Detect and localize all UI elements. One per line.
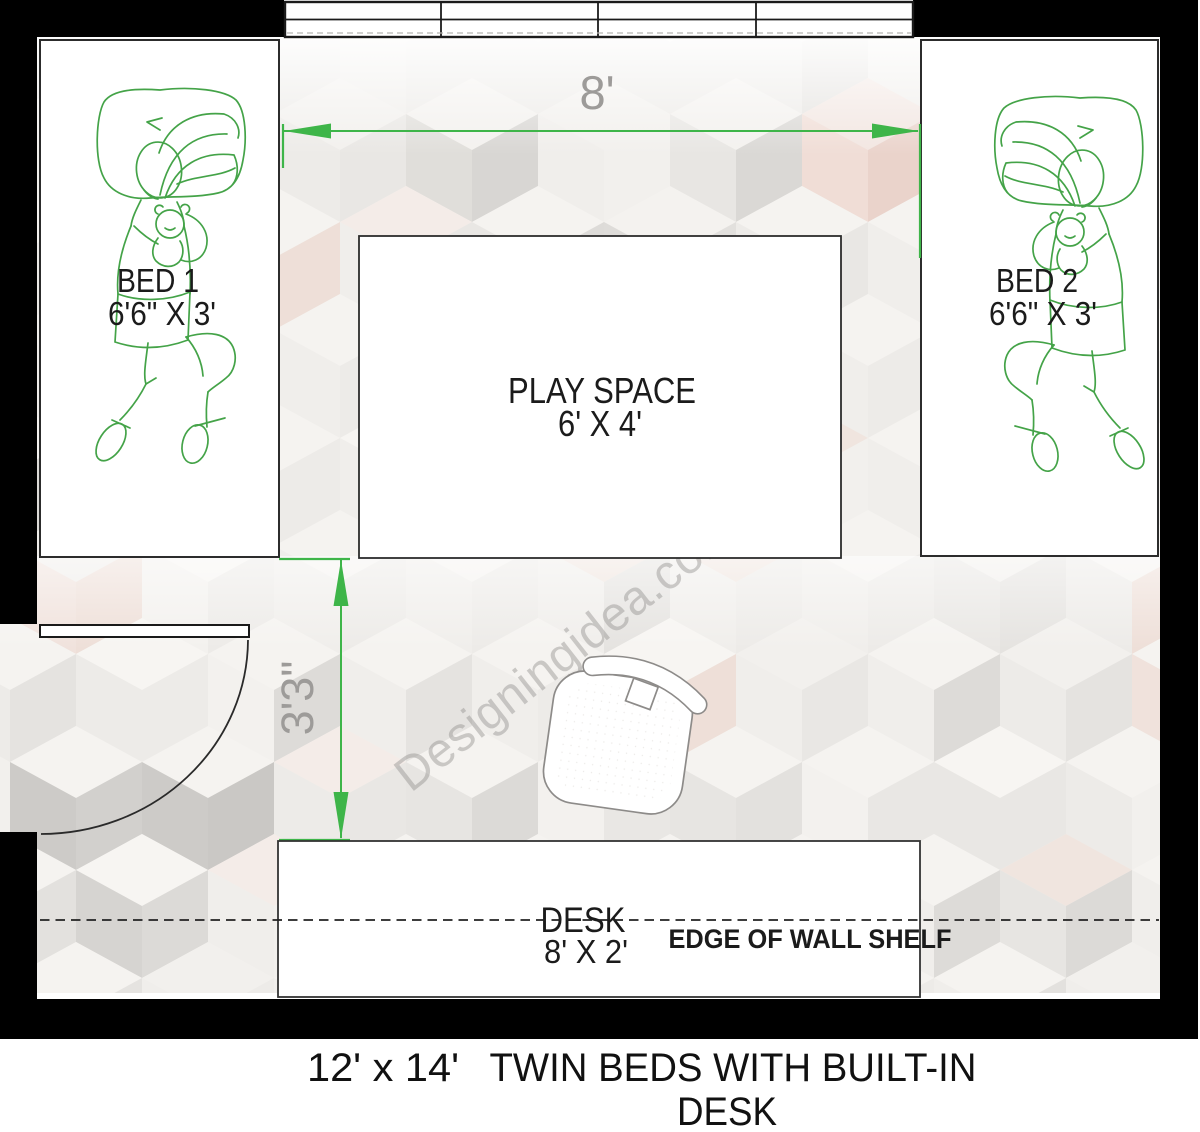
svg-text:3'3": 3'3" (272, 661, 323, 736)
svg-text:6'6" X 3': 6'6" X 3' (989, 295, 1097, 332)
svg-text:8': 8' (579, 66, 614, 119)
svg-text:EDGE OF WALL SHELF: EDGE OF WALL SHELF (669, 924, 952, 954)
svg-text:BED 1: BED 1 (117, 262, 199, 299)
svg-text:8' X 2': 8' X 2' (544, 933, 628, 970)
svg-text:TWIN BEDS WITH BUILT-IN: TWIN BEDS WITH BUILT-IN (490, 1046, 977, 1090)
svg-text:12' x 14': 12' x 14' (307, 1046, 459, 1090)
svg-text:6'6" X 3': 6'6" X 3' (108, 295, 216, 332)
svg-text:DESK: DESK (677, 1090, 777, 1132)
svg-text:BED 2: BED 2 (996, 262, 1078, 299)
svg-text:6' X 4': 6' X 4' (558, 403, 642, 444)
